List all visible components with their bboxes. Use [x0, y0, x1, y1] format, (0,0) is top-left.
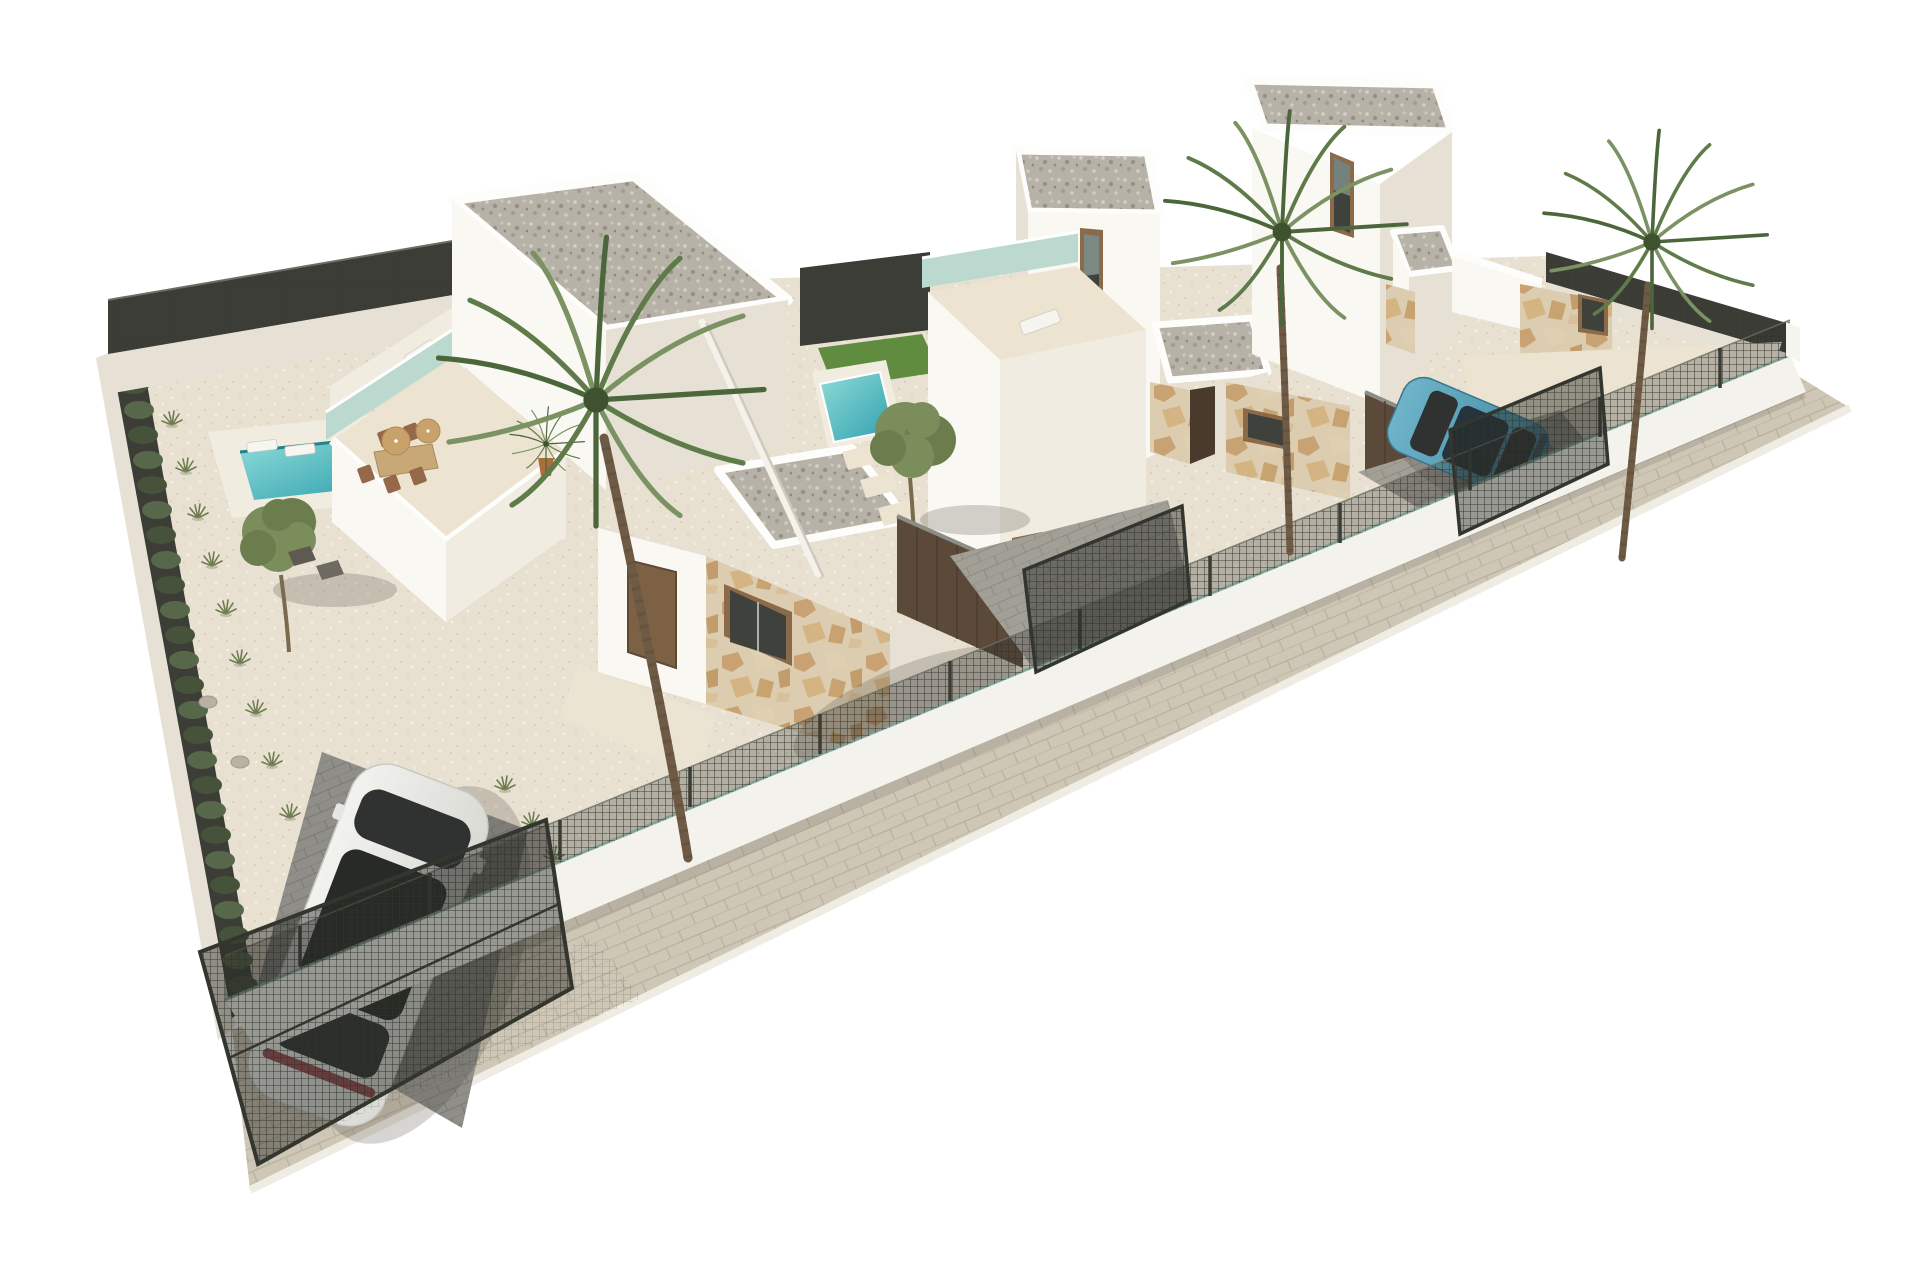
- tree-shadow: [273, 573, 397, 607]
- entry-door: [1190, 386, 1215, 464]
- stone-cladding: [1150, 382, 1190, 464]
- porch-roof: [1155, 318, 1268, 380]
- villa3-roof: [1248, 80, 1452, 132]
- north-fence-mid: [800, 252, 930, 346]
- villa2-roof: [1016, 150, 1160, 214]
- tree-shadow: [920, 505, 1030, 535]
- corner-post: [1786, 322, 1800, 362]
- architectural-render: [0, 0, 1920, 1280]
- render-canvas: [0, 0, 1920, 1280]
